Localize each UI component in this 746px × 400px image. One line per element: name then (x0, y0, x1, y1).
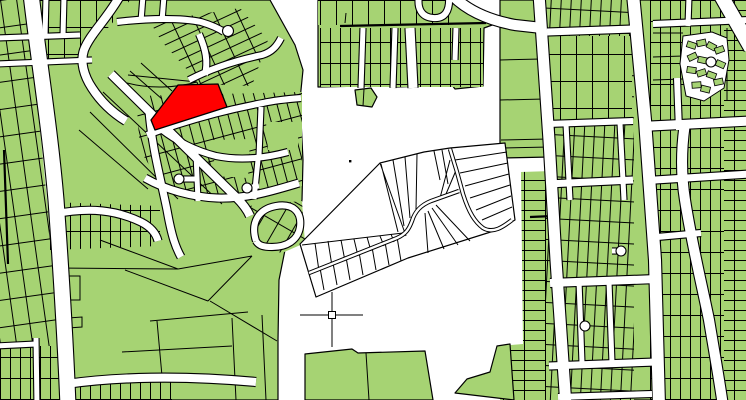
cul-de-sac-icon (580, 321, 590, 331)
crosshair-arms (300, 292, 363, 347)
cul-de-sac-icon (223, 26, 234, 37)
cul-de-sac-icon (706, 57, 716, 67)
cul-de-sac-icon (616, 246, 626, 256)
crosshair-center-box (329, 312, 336, 319)
map-canvas[interactable] (0, 0, 746, 400)
map-viewport[interactable] (0, 0, 746, 400)
land-bottom-center-east (455, 344, 514, 400)
cul-de-sac-icon (174, 174, 184, 184)
crosshair-marker (300, 292, 363, 347)
parcel-island (355, 88, 377, 107)
cul-de-sac-icon (242, 183, 252, 193)
subdivision-plat (300, 143, 515, 297)
reference-point-marker (349, 160, 351, 162)
